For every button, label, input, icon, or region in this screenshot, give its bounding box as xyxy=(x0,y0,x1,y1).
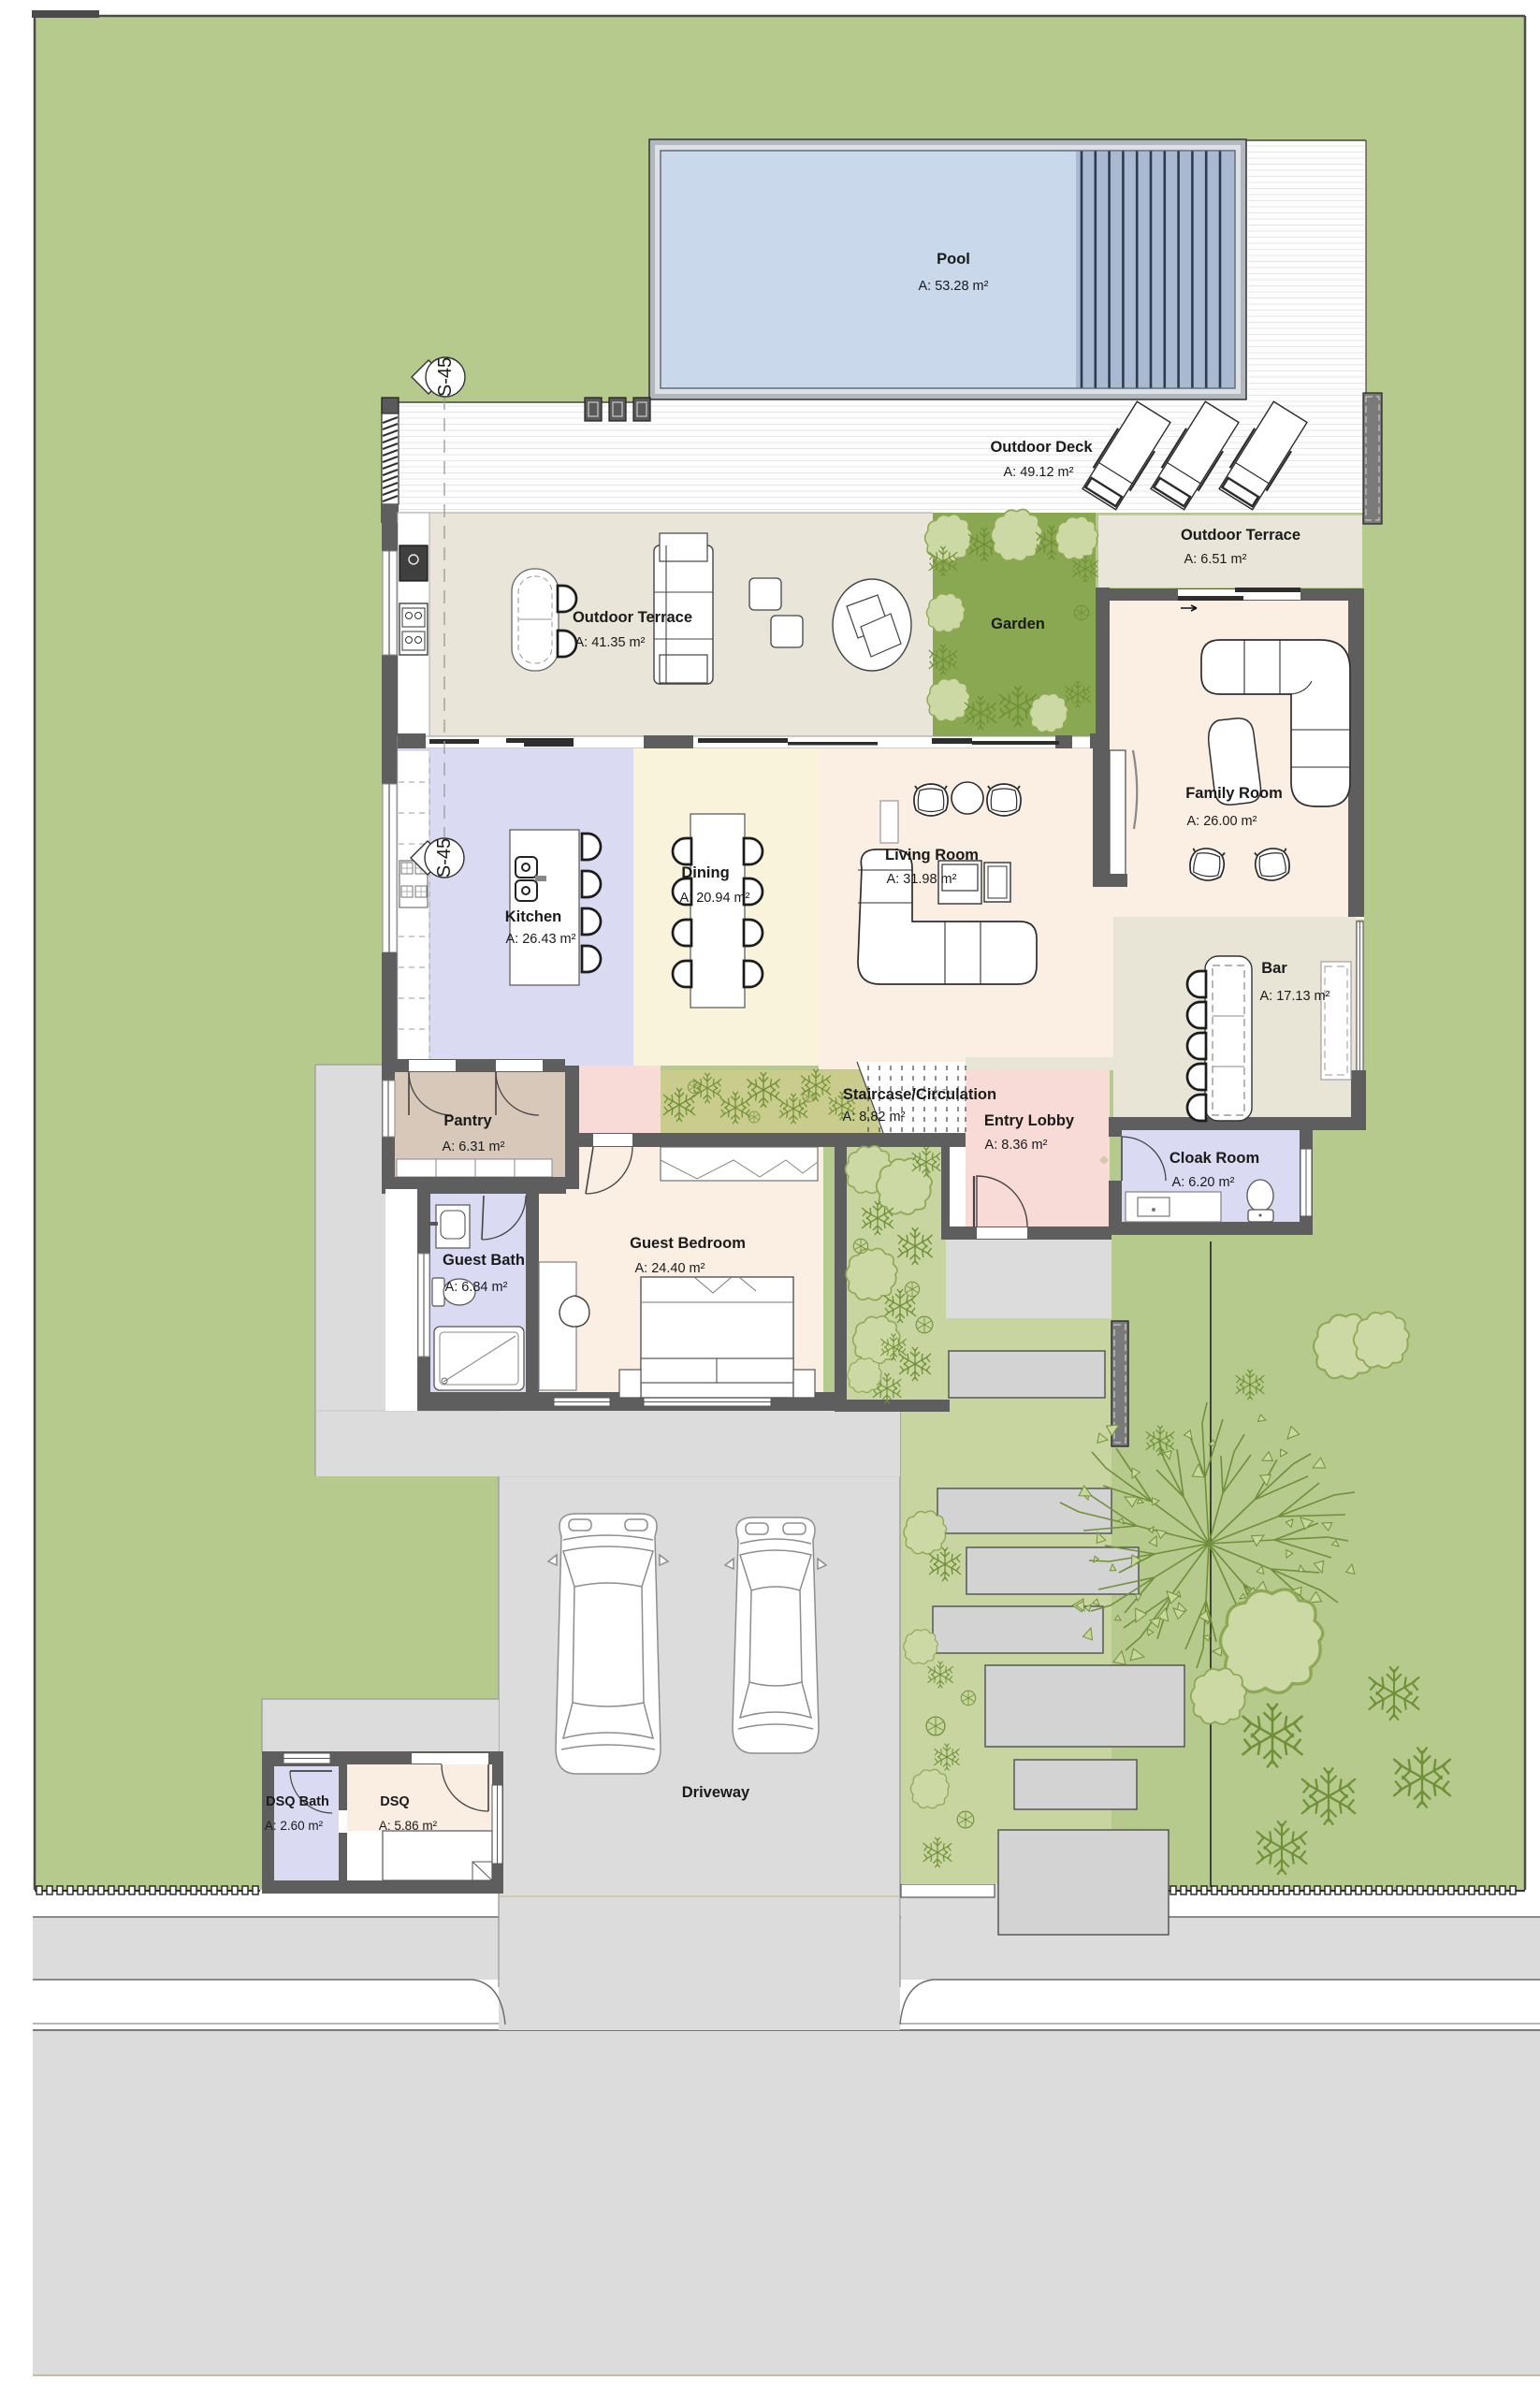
svg-text:Guest Bedroom: Guest Bedroom xyxy=(630,1235,746,1252)
svg-text:A: 17.13 m²: A: 17.13 m² xyxy=(1260,989,1330,1004)
svg-text:A: 20.94 m²: A: 20.94 m² xyxy=(680,891,750,906)
svg-text:S-45: S-45 xyxy=(434,838,455,878)
svg-text:A: 6.31 m²: A: 6.31 m² xyxy=(443,1139,505,1154)
svg-text:DSQ: DSQ xyxy=(380,1794,409,1809)
svg-text:A: 8.82 m²: A: 8.82 m² xyxy=(843,1110,906,1125)
svg-text:Driveway: Driveway xyxy=(682,1784,750,1801)
svg-text:A: 53.28 m²: A: 53.28 m² xyxy=(919,279,989,294)
svg-text:A: 49.12 m²: A: 49.12 m² xyxy=(1004,465,1074,480)
svg-text:Dining: Dining xyxy=(681,864,729,881)
svg-text:Outdoor Terrace: Outdoor Terrace xyxy=(573,609,692,626)
svg-text:A: 8.36 m²: A: 8.36 m² xyxy=(985,1138,1048,1153)
svg-text:Bar: Bar xyxy=(1261,960,1287,977)
svg-text:Outdoor Terrace: Outdoor Terrace xyxy=(1181,527,1300,544)
svg-text:A: 5.86 m²: A: 5.86 m² xyxy=(379,1819,438,1833)
svg-text:Guest Bath: Guest Bath xyxy=(443,1252,525,1269)
svg-text:Cloak Room: Cloak Room xyxy=(1170,1150,1259,1167)
svg-text:A: 6.51 m²: A: 6.51 m² xyxy=(1184,552,1247,567)
svg-text:Outdoor Deck: Outdoor Deck xyxy=(990,439,1093,456)
svg-text:Family Room: Family Room xyxy=(1185,785,1283,802)
svg-text:A: 26.00 m²: A: 26.00 m² xyxy=(1187,814,1257,829)
svg-text:Living Room: Living Room xyxy=(885,847,979,864)
svg-text:A: 31.98 m²: A: 31.98 m² xyxy=(887,872,957,887)
svg-text:A: 41.35 m²: A: 41.35 m² xyxy=(575,635,646,650)
svg-text:A: 6.84 m²: A: 6.84 m² xyxy=(445,1280,508,1295)
svg-text:Pantry: Pantry xyxy=(443,1112,492,1129)
svg-text:S-45: S-45 xyxy=(435,357,456,397)
svg-text:Kitchen: Kitchen xyxy=(505,908,562,925)
svg-text:Staircase/Circulation: Staircase/Circulation xyxy=(843,1086,996,1103)
svg-text:Pool: Pool xyxy=(937,251,970,268)
svg-text:A: 6.20 m²: A: 6.20 m² xyxy=(1172,1175,1235,1190)
svg-text:DSQ Bath: DSQ Bath xyxy=(266,1794,329,1809)
svg-text:Garden: Garden xyxy=(991,616,1045,632)
svg-text:A: 26.43 m²: A: 26.43 m² xyxy=(506,932,576,947)
svg-text:A: 2.60 m²: A: 2.60 m² xyxy=(265,1819,324,1833)
svg-text:Entry Lobby: Entry Lobby xyxy=(984,1112,1075,1129)
svg-text:A: 24.40 m²: A: 24.40 m² xyxy=(635,1261,705,1276)
